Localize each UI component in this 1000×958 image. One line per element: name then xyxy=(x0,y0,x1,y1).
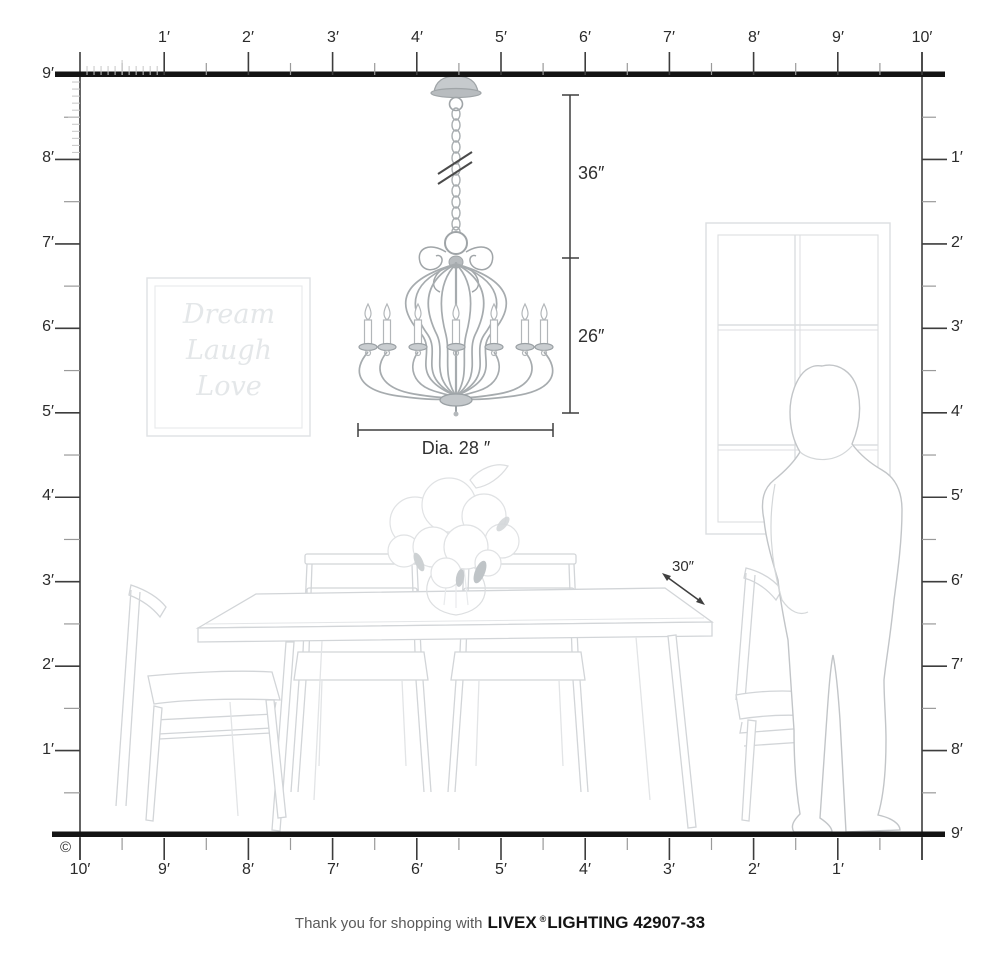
ruler-label-left-1: 1′ xyxy=(20,741,54,759)
ruler-label-top-4: 4′ xyxy=(411,29,423,47)
dimension-label-table-depth: 30″ xyxy=(672,558,694,575)
ruler-label-right-9: 9′ xyxy=(951,825,963,843)
ruler-label-bottom-8: 8′ xyxy=(242,861,254,879)
ruler-label-left-3: 3′ xyxy=(20,572,54,590)
ruler-label-bottom-10: 10′ xyxy=(70,861,91,879)
ruler-label-bottom-2: 2′ xyxy=(748,861,760,879)
room-scale-diagram: Dream Laugh Love 1′ 2′ 3′ 4′ 5′ 6′ 7′ 8′… xyxy=(0,0,1000,958)
ruler-label-top-1: 1′ xyxy=(158,29,170,47)
chandelier-drawing xyxy=(359,76,553,417)
product-number: LIGHTING 42907-33 xyxy=(547,913,705,932)
wall-art-line: Dream xyxy=(150,297,308,333)
floor-line xyxy=(52,832,945,838)
chain-break-mark xyxy=(438,152,472,184)
ruler-label-right-6: 6′ xyxy=(951,572,963,590)
ruler-label-top-6: 6′ xyxy=(579,29,591,47)
ruler-label-left-4: 4′ xyxy=(20,487,54,505)
ruler-label-right-2: 2′ xyxy=(951,234,963,252)
ruler-label-right-1: 1′ xyxy=(951,149,963,167)
ruler-label-left-2: 2′ xyxy=(20,656,54,674)
ruler-label-top-9: 9′ xyxy=(832,29,844,47)
ruler-label-top-2: 2′ xyxy=(242,29,254,47)
brand-name: LIVEX xyxy=(488,913,537,932)
ruler-label-bottom-4: 4′ xyxy=(579,861,591,879)
ruler-label-left-7: 7′ xyxy=(20,234,54,252)
ruler-label-top-10: 10′ xyxy=(912,29,933,47)
candles xyxy=(359,304,553,356)
person-silhouette xyxy=(762,365,902,832)
ruler-label-bottom-6: 6′ xyxy=(411,861,423,879)
registered-mark: ® xyxy=(540,914,547,924)
ruler-label-top-3: 3′ xyxy=(327,29,339,47)
wall-art-text: Dream Laugh Love xyxy=(150,297,308,405)
ruler-label-right-8: 8′ xyxy=(951,741,963,759)
ruler-label-top-5: 5′ xyxy=(495,29,507,47)
dimension-label-hang-height: 36″ xyxy=(578,163,604,184)
ruler-label-right-4: 4′ xyxy=(951,403,963,421)
ruler-label-right-7: 7′ xyxy=(951,656,963,674)
ruler-label-top-8: 8′ xyxy=(748,29,760,47)
flower-centerpiece xyxy=(388,465,519,588)
ruler-label-bottom-7: 7′ xyxy=(327,861,339,879)
ruler-label-left-8: 8′ xyxy=(20,149,54,167)
dimension-label-diameter: Dia. 28 ″ xyxy=(422,438,490,459)
ceiling-line xyxy=(55,72,945,78)
ruler-label-bottom-9: 9′ xyxy=(158,861,170,879)
footer-text: Thank you for shopping withLIVEX®LIGHTIN… xyxy=(0,913,1000,933)
ruler-label-left-9: 9′ xyxy=(20,65,54,83)
ruler-label-left-5: 5′ xyxy=(20,403,54,421)
ruler-label-bottom-5: 5′ xyxy=(495,861,507,879)
ruler-label-right-5: 5′ xyxy=(951,487,963,505)
wall-art-line: Laugh xyxy=(150,333,308,369)
ruler-label-bottom-3: 3′ xyxy=(663,861,675,879)
ruler-label-top-7: 7′ xyxy=(663,29,675,47)
ruler-label-bottom-1: 1′ xyxy=(832,861,844,879)
ruler-label-right-3: 3′ xyxy=(951,318,963,336)
ruler-label-left-6: 6′ xyxy=(20,318,54,336)
footer-prefix: Thank you for shopping with xyxy=(295,915,483,932)
copyright-symbol: © xyxy=(60,839,71,856)
wall-art-line: Love xyxy=(150,369,308,405)
dimension-label-fixture-height: 26″ xyxy=(578,326,604,347)
scene-artwork xyxy=(0,0,1000,958)
